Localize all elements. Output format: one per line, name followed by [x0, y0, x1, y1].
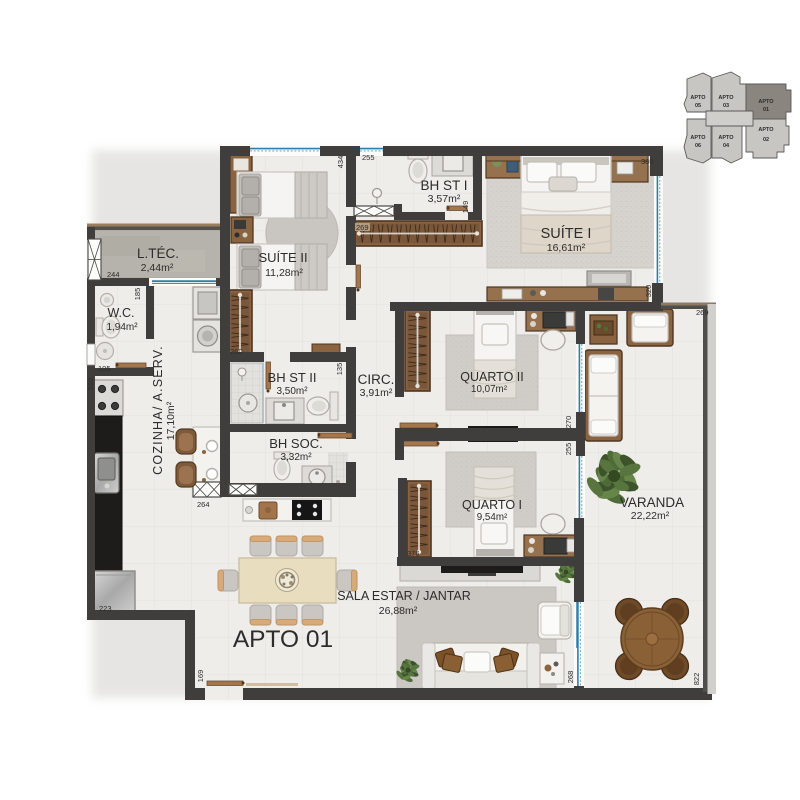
svg-text:255: 255: [362, 153, 375, 162]
svg-text:APTO: APTO: [718, 95, 734, 101]
svg-text:COZINHA/ A.SERV.: COZINHA/ A.SERV.: [151, 345, 165, 475]
svg-text:BH SOC.: BH SOC.: [269, 436, 322, 451]
svg-text:434: 434: [336, 156, 345, 169]
svg-text:QUARTO I: QUARTO I: [462, 498, 522, 512]
svg-text:270: 270: [564, 416, 573, 429]
svg-text:380: 380: [641, 157, 654, 166]
svg-text:CIRC.: CIRC.: [358, 372, 395, 387]
svg-text:05: 05: [695, 103, 701, 109]
svg-text:26,88m²: 26,88m²: [379, 605, 418, 617]
svg-text:W.C.: W.C.: [107, 306, 134, 320]
svg-text:9,54m²: 9,54m²: [477, 512, 508, 523]
svg-text:QUARTO II: QUARTO II: [460, 370, 523, 384]
svg-text:185: 185: [133, 288, 142, 301]
svg-text:10,07m²: 10,07m²: [471, 384, 508, 395]
svg-text:260: 260: [230, 347, 243, 356]
svg-text:223: 223: [99, 604, 112, 613]
svg-text:APTO: APTO: [690, 135, 706, 141]
svg-text:APTO: APTO: [758, 127, 774, 133]
svg-text:269: 269: [356, 223, 369, 232]
svg-text:376: 376: [407, 549, 420, 558]
svg-text:135: 135: [335, 363, 344, 376]
svg-text:APTO: APTO: [718, 135, 734, 141]
svg-text:105: 105: [98, 364, 111, 373]
svg-text:264: 264: [197, 500, 210, 509]
svg-text:SUÍTE I: SUÍTE I: [541, 225, 592, 242]
svg-text:02: 02: [763, 137, 769, 143]
svg-text:1,94m²: 1,94m²: [106, 322, 138, 333]
svg-text:268: 268: [566, 671, 575, 684]
svg-text:510: 510: [86, 378, 95, 391]
svg-text:149: 149: [461, 201, 470, 214]
svg-text:06: 06: [695, 143, 701, 149]
svg-text:17,10m²: 17,10m²: [165, 401, 177, 440]
svg-text:3,32m²: 3,32m²: [280, 452, 312, 463]
svg-text:2,44m²: 2,44m²: [141, 262, 174, 274]
svg-text:04: 04: [723, 143, 730, 149]
svg-text:3,50m²: 3,50m²: [276, 386, 308, 397]
svg-text:255: 255: [564, 443, 573, 456]
svg-text:169: 169: [196, 670, 205, 683]
svg-text:320: 320: [644, 285, 653, 298]
svg-text:244: 244: [107, 270, 120, 279]
svg-text:VARANDA: VARANDA: [620, 495, 684, 510]
svg-text:BH ST I: BH ST I: [420, 178, 467, 193]
svg-text:269: 269: [696, 308, 709, 317]
svg-text:APTO: APTO: [690, 95, 706, 101]
svg-text:3,91m²: 3,91m²: [360, 387, 393, 399]
svg-text:SUÍTE II: SUÍTE II: [258, 250, 307, 265]
svg-text:16,61m²: 16,61m²: [547, 242, 586, 254]
svg-text:3,57m²: 3,57m²: [428, 193, 461, 205]
svg-text:APTO 01: APTO 01: [233, 626, 333, 653]
svg-text:822: 822: [692, 673, 701, 686]
svg-text:01: 01: [763, 107, 769, 113]
svg-text:APTO: APTO: [758, 99, 774, 105]
svg-text:SALA ESTAR / JANTAR: SALA ESTAR / JANTAR: [337, 589, 471, 603]
svg-text:22,22m²: 22,22m²: [631, 510, 670, 522]
svg-text:11,28m²: 11,28m²: [265, 267, 303, 279]
svg-text:L.TÉC.: L.TÉC.: [137, 246, 179, 261]
svg-text:03: 03: [723, 103, 729, 109]
svg-text:BH ST II: BH ST II: [268, 370, 317, 385]
